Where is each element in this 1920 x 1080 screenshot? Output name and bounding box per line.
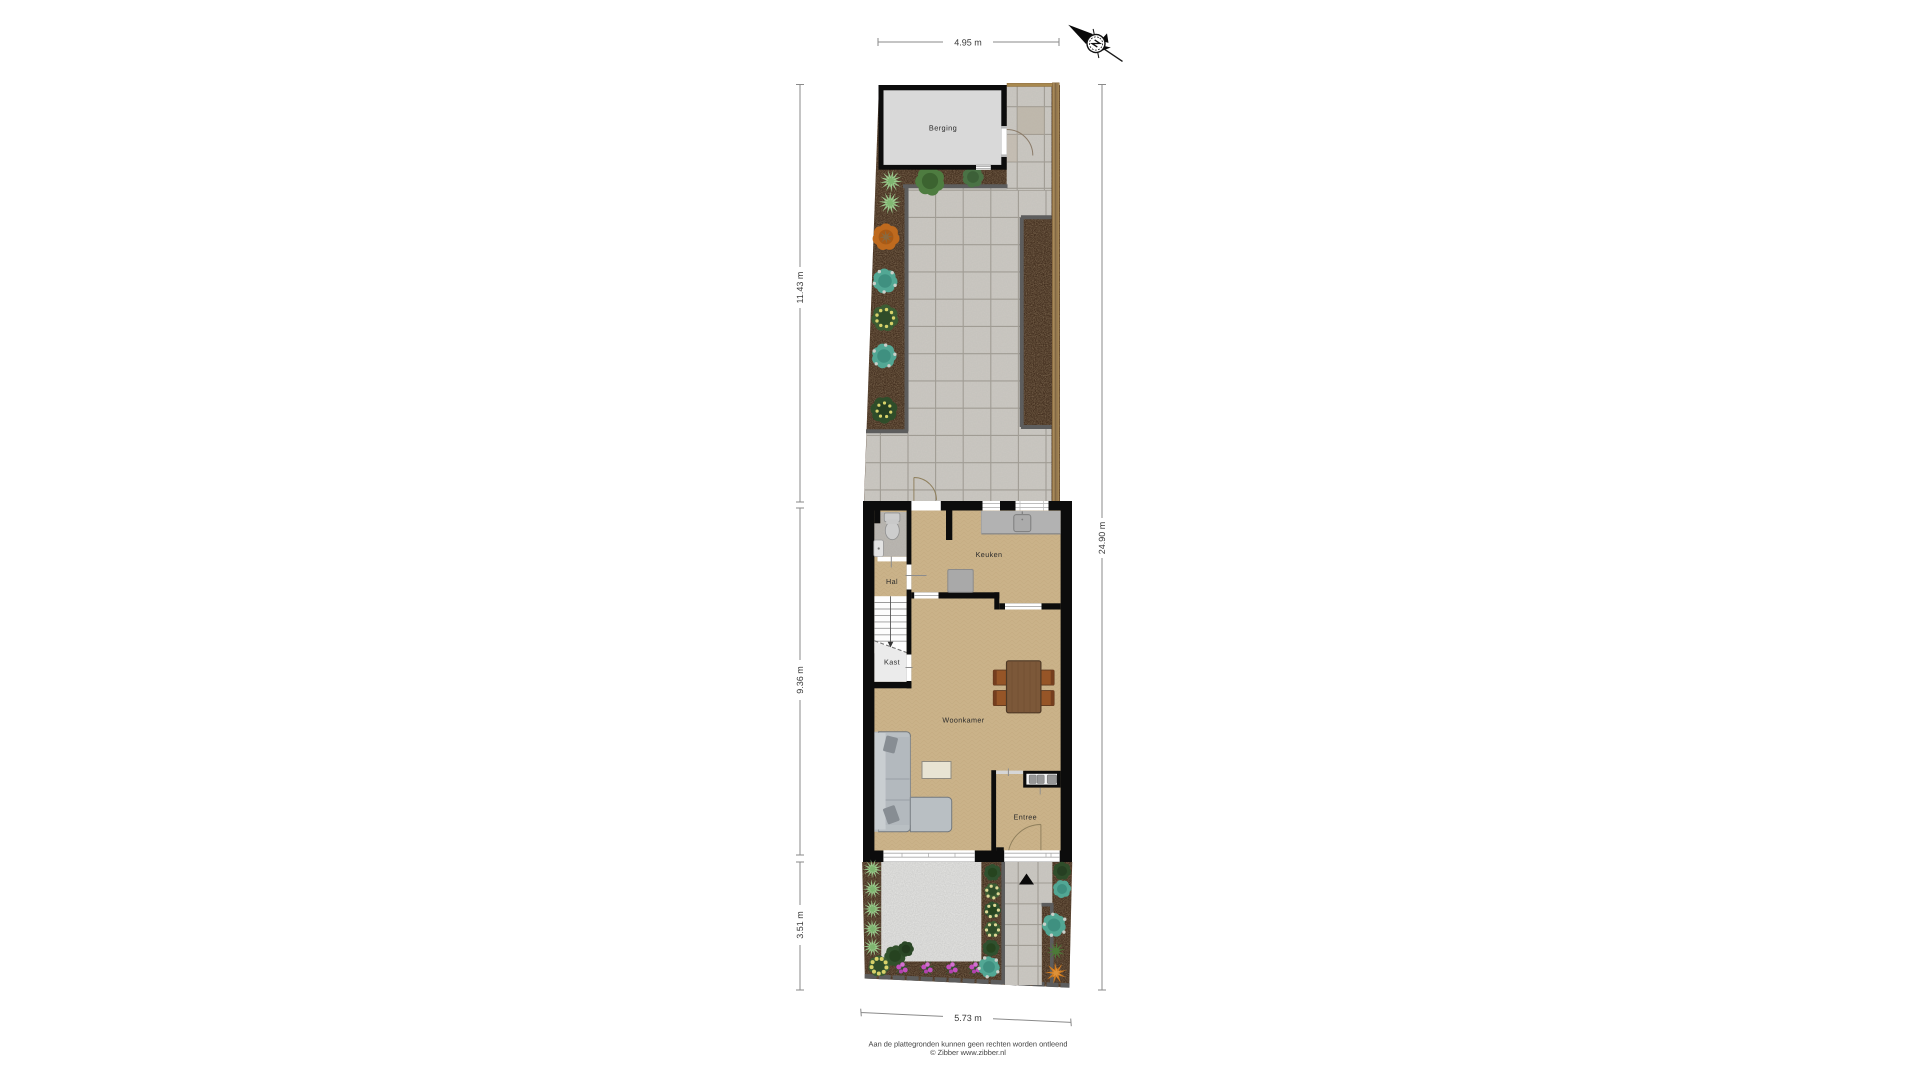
svg-text:Keuken: Keuken: [976, 550, 1003, 559]
svg-text:© Zibber www.zibber.nl: © Zibber www.zibber.nl: [930, 1048, 1006, 1057]
svg-text:4.95 m: 4.95 m: [954, 38, 982, 48]
svg-text:11.43 m: 11.43 m: [795, 272, 805, 304]
svg-text:Entree: Entree: [1014, 812, 1038, 821]
svg-text:Kast: Kast: [884, 658, 900, 667]
svg-text:Hal: Hal: [886, 577, 898, 586]
svg-text:24.90 m: 24.90 m: [1097, 522, 1107, 555]
svg-text:Woonkamer: Woonkamer: [942, 716, 984, 725]
svg-text:Berging: Berging: [929, 124, 957, 133]
svg-text:5.73 m: 5.73 m: [954, 1013, 982, 1023]
svg-text:9.36 m: 9.36 m: [795, 666, 805, 694]
svg-text:3.51 m: 3.51 m: [795, 911, 805, 939]
